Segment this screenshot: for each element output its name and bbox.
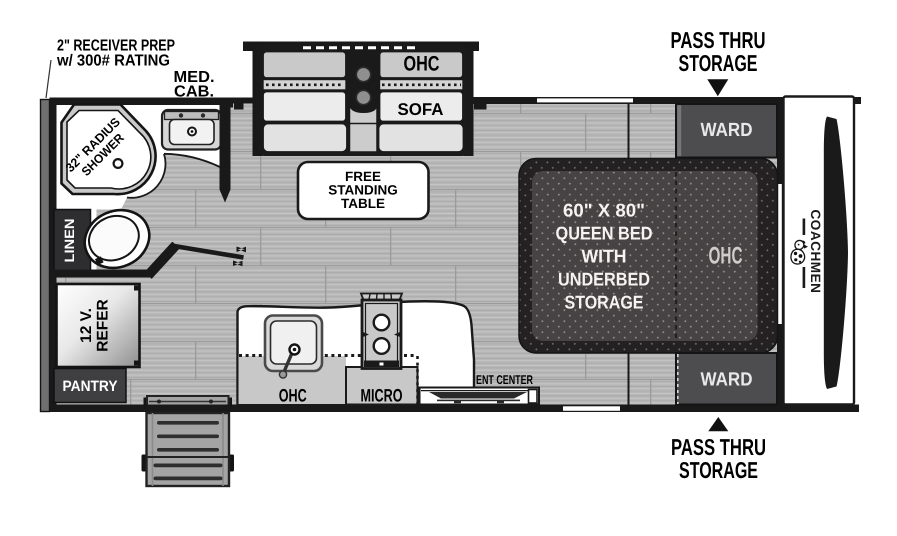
svg-text:QUEEN BED: QUEEN BED (556, 223, 653, 244)
svg-text:MICRO: MICRO (361, 386, 403, 406)
svg-text:STORAGE: STORAGE (565, 292, 644, 313)
svg-text:12 V.: 12 V. (78, 308, 95, 343)
svg-text:STORAGE: STORAGE (679, 50, 758, 76)
svg-text:OHC: OHC (709, 243, 743, 270)
svg-text:TABLE: TABLE (341, 196, 385, 211)
svg-text:REFER: REFER (95, 299, 112, 352)
svg-text:LINEN: LINEN (62, 219, 77, 263)
svg-text:WARD: WARD (701, 120, 753, 141)
svg-text:UNDERBED: UNDERBED (558, 269, 650, 290)
svg-text:COACHMEN: COACHMEN (808, 210, 823, 294)
svg-text:SOFA: SOFA (398, 100, 444, 119)
svg-text:WARD: WARD (701, 370, 753, 391)
svg-text:ENT CENTER: ENT CENTER (476, 373, 533, 387)
svg-text:STORAGE: STORAGE (679, 457, 758, 483)
svg-text:WITH: WITH (582, 246, 627, 267)
svg-text:PANTRY: PANTRY (63, 378, 118, 395)
svg-text:OHC: OHC (404, 53, 440, 76)
svg-text:w/ 300# RATING: w/ 300# RATING (56, 53, 170, 70)
svg-text:OHC: OHC (279, 386, 307, 406)
svg-text:60" X 80": 60" X 80" (563, 200, 645, 221)
